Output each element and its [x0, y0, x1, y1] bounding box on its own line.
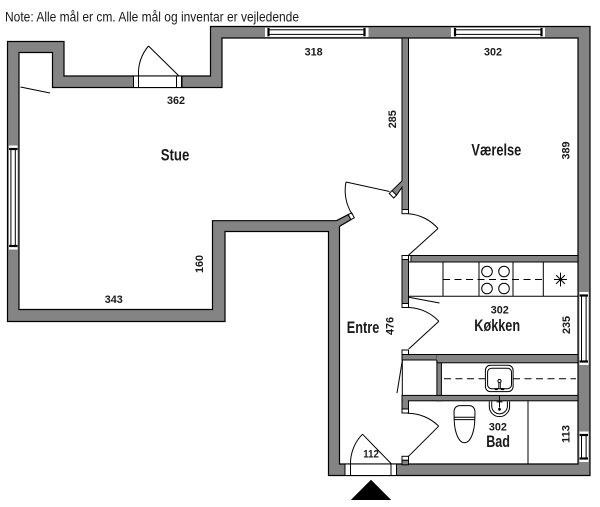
svg-text:318: 318 — [305, 46, 323, 58]
svg-text:Bad: Bad — [486, 433, 510, 451]
svg-text:Stue: Stue — [161, 146, 190, 164]
svg-text:302: 302 — [489, 422, 507, 434]
svg-text:112: 112 — [363, 449, 379, 461]
svg-text:Værelse: Værelse — [471, 141, 521, 159]
svg-text:389: 389 — [561, 142, 573, 160]
svg-text:Note: Alle mål er cm. Alle mål: Note: Alle mål er cm. Alle mål og invent… — [5, 9, 299, 24]
svg-text:302: 302 — [484, 46, 502, 58]
svg-text:362: 362 — [167, 95, 185, 107]
svg-text:285: 285 — [387, 110, 399, 129]
svg-text:343: 343 — [105, 294, 123, 306]
svg-text:160: 160 — [194, 255, 206, 273]
svg-text:Køkken: Køkken — [474, 317, 520, 335]
svg-text:113: 113 — [561, 425, 573, 443]
svg-text:302: 302 — [491, 304, 509, 316]
svg-text:235: 235 — [561, 315, 573, 334]
svg-text:476: 476 — [385, 317, 397, 335]
svg-text:Entre: Entre — [347, 319, 380, 337]
